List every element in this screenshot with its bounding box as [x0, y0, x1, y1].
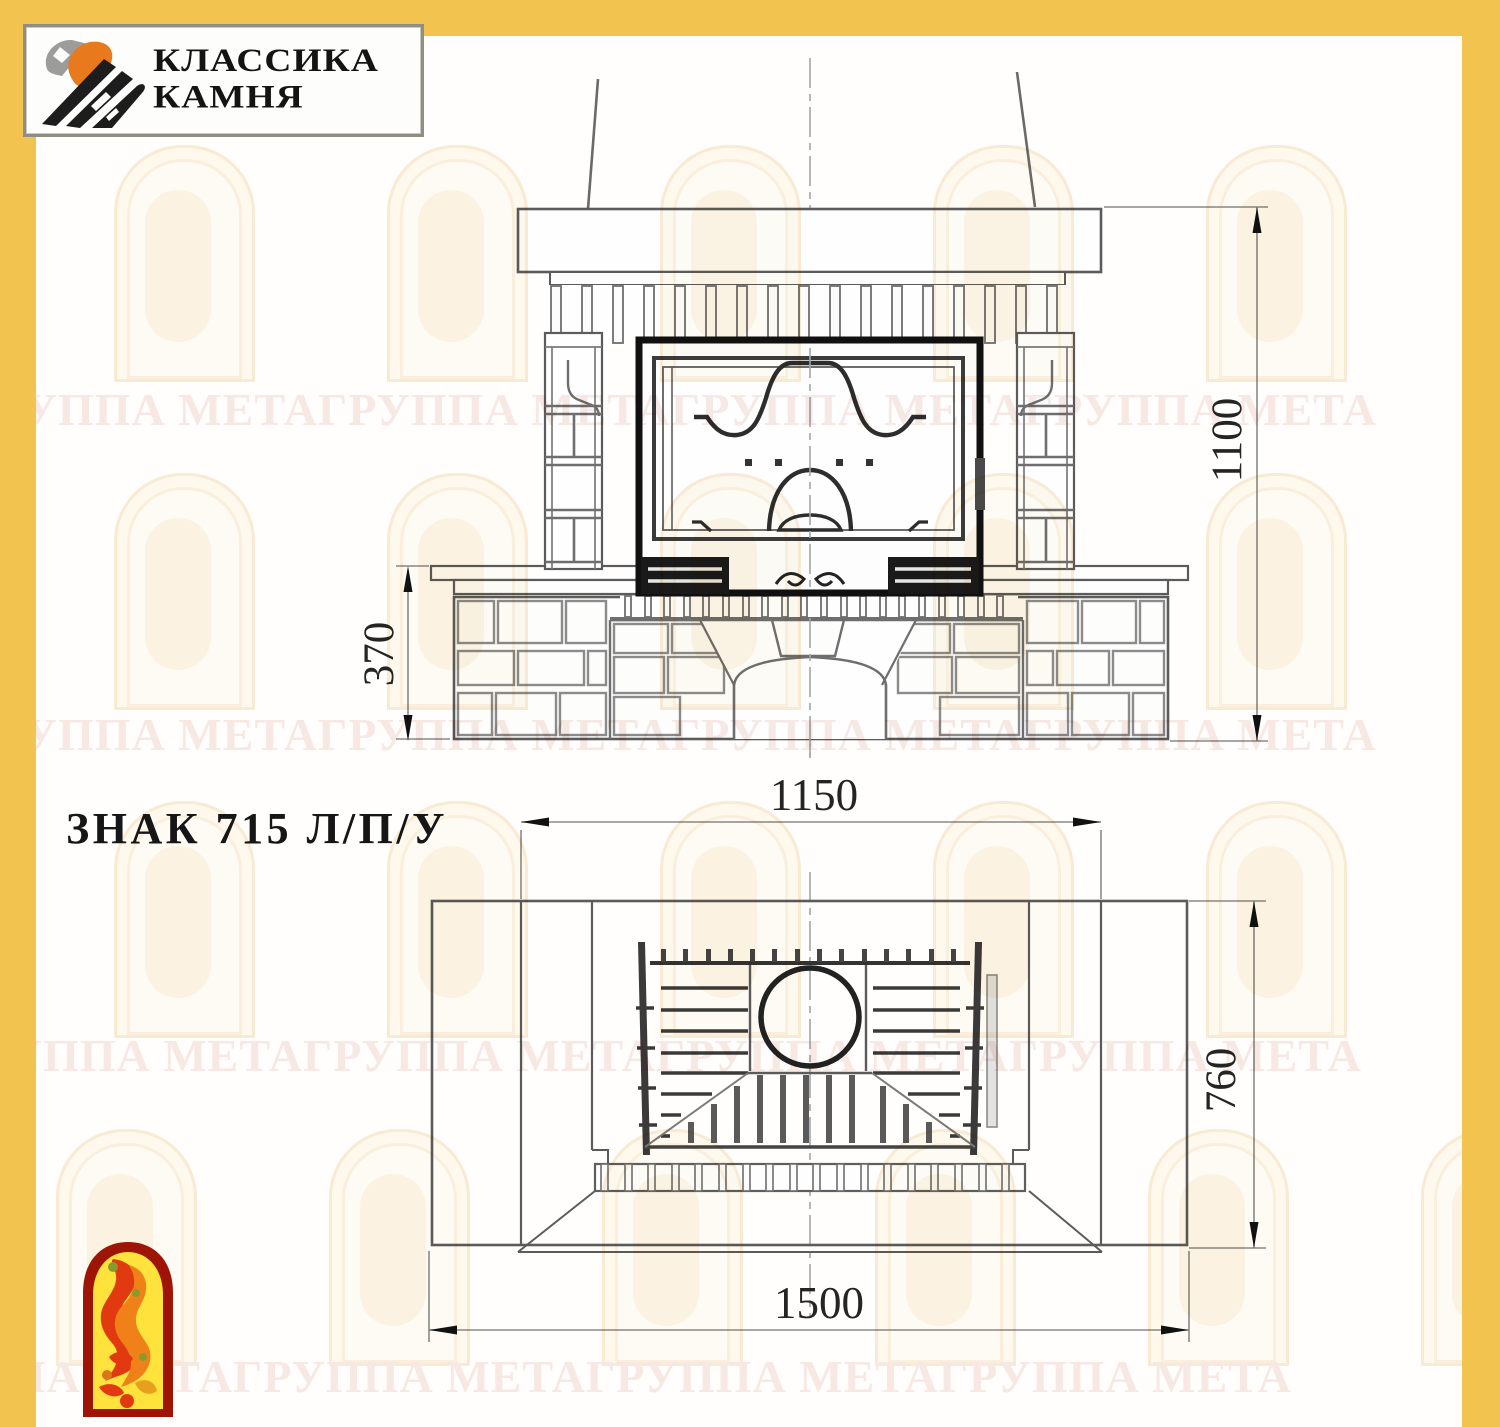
svg-text:760: 760	[1198, 1048, 1245, 1113]
svg-text:1500: 1500	[774, 1278, 864, 1328]
svg-text:1100: 1100	[1204, 398, 1251, 482]
svg-text:1150: 1150	[770, 770, 858, 820]
svg-text:370: 370	[356, 622, 403, 687]
